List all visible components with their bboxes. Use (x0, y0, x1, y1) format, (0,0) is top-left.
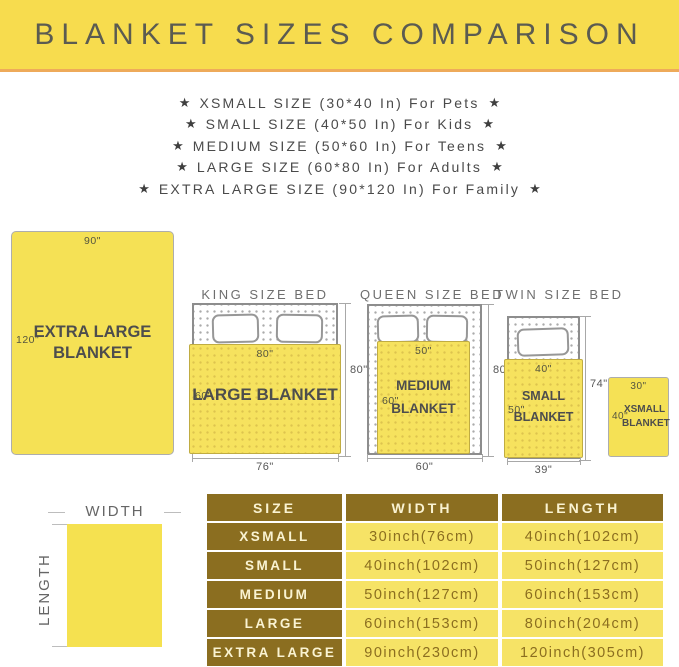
table-cell: 30inch(76cm) (346, 523, 498, 550)
queen-bed-title: QUEEN SIZE BED (360, 287, 490, 302)
pillow (377, 314, 420, 343)
table-row-label: EXTRA LARGE (207, 639, 342, 666)
blanket-width-label: 40" (505, 363, 582, 375)
bed-width-label: 60" (367, 461, 482, 473)
star-icon: ★ (185, 116, 197, 132)
dimension-tick (482, 454, 483, 462)
blanket-width-label: 80" (190, 348, 340, 360)
dimension-tick (482, 456, 494, 457)
pillow (212, 313, 260, 343)
dimension-tick (482, 304, 494, 305)
blanket-name-line: BLANKET (622, 417, 667, 431)
large-blanket: 80" 60" LARGE BLANKET (189, 344, 341, 454)
twin-bed-title: TWIN SIZE BED (495, 287, 595, 302)
bed-width-label: 39" (507, 464, 580, 476)
star-icon: ★ (176, 159, 188, 175)
dimension-line (345, 303, 346, 457)
star-icon: ★ (482, 116, 494, 132)
dimension-tick (52, 524, 67, 525)
blanket-name-line: EXTRA LARGE (12, 322, 173, 343)
king-bed-title: KING SIZE BED (192, 287, 338, 302)
extra-large-blanket: 90" 120" EXTRA LARGE BLANKET (11, 231, 174, 455)
xsmall-blanket: 30" 40" XSMALL BLANKET (608, 377, 669, 457)
dimension-tick (580, 457, 581, 465)
blanket-name-line: BLANKET (378, 397, 469, 420)
blanket-name-line: MEDIUM (378, 374, 469, 397)
legend-blanket-swatch (67, 524, 162, 647)
blanket-name-line: BLANKET (12, 343, 173, 364)
bed-height-label: 80" (350, 364, 368, 376)
blanket-name: LARGE BLANKET (190, 385, 340, 405)
blanket-name: MEDIUM BLANKET (378, 374, 469, 420)
blanket-width-label: 50" (378, 345, 469, 357)
size-list-item: ★ MEDIUM SIZE (50*60 In) For Teens ★ (0, 135, 679, 157)
table-cell: 120inch(305cm) (502, 639, 663, 666)
blanket-name-line: SMALL (505, 386, 582, 407)
dimension-tick (579, 316, 591, 317)
blanket-name: SMALL BLANKET (505, 386, 582, 428)
table-cell: 40inch(102cm) (346, 552, 498, 579)
legend-width-label: WIDTH (76, 503, 154, 520)
small-blanket: 40" 50" SMALL BLANKET (504, 359, 583, 458)
title-banner: BLANKET SIZES COMPARISON (0, 0, 679, 72)
blanket-name: EXTRA LARGE BLANKET (12, 322, 173, 364)
size-list-text: LARGE SIZE (60*80 In) For Adults (197, 159, 482, 175)
table-row-label: LARGE (207, 610, 342, 637)
table-cell: 60inch(153cm) (502, 581, 663, 608)
blanket-sizes-infographic: BLANKET SIZES COMPARISON ★ XSMALL SIZE (… (0, 0, 679, 667)
dimension-tick (339, 456, 351, 457)
star-icon: ★ (172, 138, 184, 154)
dimension-tick (339, 303, 351, 304)
table-cell: 50inch(127cm) (502, 552, 663, 579)
star-icon: ★ (495, 138, 507, 154)
table-cell: 80inch(204cm) (502, 610, 663, 637)
star-icon: ★ (179, 95, 191, 111)
dimension-tick (52, 646, 67, 647)
blanket-width-label: 90" (12, 235, 173, 247)
blanket-width-label: 30" (609, 381, 668, 392)
size-list-text: XSMALL SIZE (30*40 In) For Pets (199, 95, 479, 111)
dimension-tick (48, 512, 65, 513)
table-cell: 40inch(102cm) (502, 523, 663, 550)
size-list-item: ★ EXTRA LARGE SIZE (90*120 In) For Famil… (0, 178, 679, 200)
blanket-name-line: XSMALL (622, 403, 667, 417)
pillow (426, 315, 468, 344)
table-header-size: SIZE (207, 494, 342, 521)
star-icon: ★ (529, 181, 541, 197)
dimension-line (192, 458, 338, 459)
size-list: ★ XSMALL SIZE (30*40 In) For Pets ★ ★ SM… (0, 92, 679, 200)
legend-length-label: LENGTH (36, 543, 56, 637)
blanket-name: XSMALL BLANKET (622, 403, 667, 431)
table-cell: 60inch(153cm) (346, 610, 498, 637)
pillow (517, 327, 570, 357)
size-table: SIZE WIDTH LENGTH XSMALL 30inch(76cm) 40… (207, 494, 663, 666)
table-row-label: SMALL (207, 552, 342, 579)
table-cell: 50inch(127cm) (346, 581, 498, 608)
blanket-name-line: BLANKET (505, 407, 582, 428)
star-icon: ★ (489, 95, 501, 111)
page-title: BLANKET SIZES COMPARISON (34, 18, 644, 52)
table-cell: 90inch(230cm) (346, 639, 498, 666)
pillow (276, 314, 323, 344)
table-row-label: XSMALL (207, 523, 342, 550)
bed-height-label: 74" (590, 378, 608, 390)
star-icon: ★ (138, 181, 150, 197)
star-icon: ★ (491, 159, 503, 175)
medium-blanket: 50" 60" MEDIUM BLANKET (377, 341, 470, 454)
dimension-line (488, 304, 489, 457)
dimension-line (367, 458, 482, 459)
table-header-width: WIDTH (346, 494, 498, 521)
size-list-text: SMALL SIZE (40*50 In) For Kids (206, 116, 474, 132)
size-list-text: EXTRA LARGE SIZE (90*120 In) For Family (159, 181, 520, 197)
size-list-item: ★ SMALL SIZE (40*50 In) For Kids ★ (0, 114, 679, 136)
size-list-item: ★ XSMALL SIZE (30*40 In) For Pets ★ (0, 92, 679, 114)
bed-width-label: 76" (192, 461, 338, 473)
table-row-label: MEDIUM (207, 581, 342, 608)
size-list-text: MEDIUM SIZE (50*60 In) For Teens (193, 138, 486, 154)
dimension-line (585, 316, 586, 461)
dimension-line (507, 461, 580, 462)
size-list-item: ★ LARGE SIZE (60*80 In) For Adults ★ (0, 157, 679, 179)
dimension-tick (164, 512, 181, 513)
dimension-tick (338, 454, 339, 462)
table-header-length: LENGTH (502, 494, 663, 521)
